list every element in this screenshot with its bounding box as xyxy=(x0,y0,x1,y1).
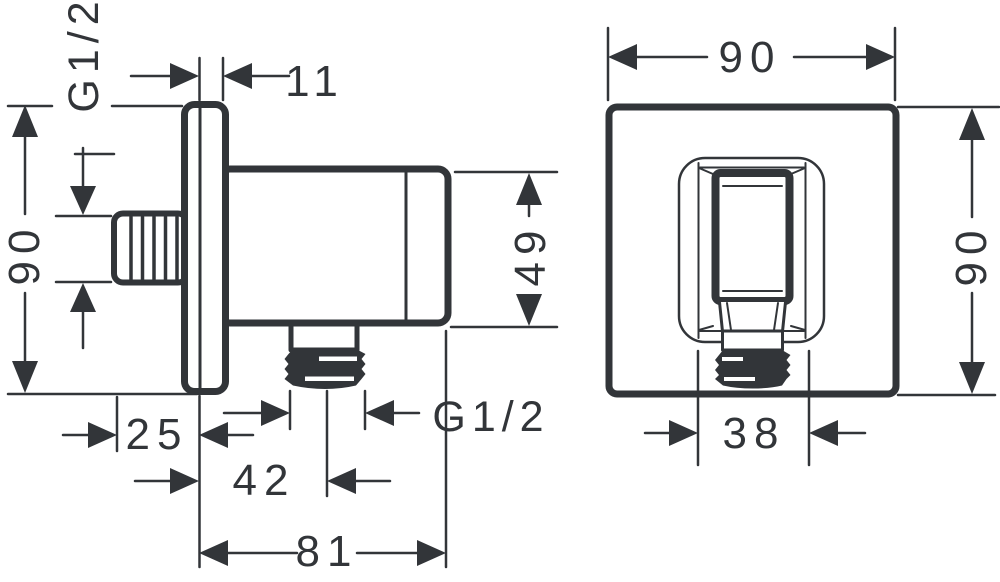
outlet-thread xyxy=(285,349,366,389)
dim-label-outlet-thread: G1/2 xyxy=(432,393,549,441)
thread-highlight xyxy=(305,377,354,382)
arrowhead xyxy=(959,108,985,140)
arrowhead xyxy=(809,420,838,446)
arrowhead xyxy=(70,186,96,215)
arrowhead xyxy=(170,468,199,494)
side-view: 11 G1/2 90 xyxy=(0,0,557,576)
thread-highlight xyxy=(722,357,743,361)
arrowhead xyxy=(12,361,38,393)
dim-label-inlet-thread: G1/2 xyxy=(60,0,108,113)
front-view-object xyxy=(609,107,896,394)
arrowhead xyxy=(88,422,117,448)
arrowhead xyxy=(223,63,252,89)
dim-outlet-thread: G1/2 xyxy=(224,391,550,441)
dim-label-outlet-width: 38 xyxy=(723,409,786,458)
thread-highlight xyxy=(724,377,755,381)
dim-label-front-overall-height: 90 xyxy=(947,224,996,287)
arrowhead xyxy=(365,400,394,426)
arrowhead xyxy=(417,540,446,566)
dim-overall-width: 90 xyxy=(608,28,895,100)
dim-label-overall-width: 90 xyxy=(719,33,782,82)
outlet-neck-front xyxy=(723,331,783,350)
dim-label-holder-height: 49 xyxy=(506,224,555,287)
thread-highlight xyxy=(319,357,357,362)
arrowhead xyxy=(199,540,228,566)
dim-plate-offset: 11 xyxy=(131,57,345,106)
front-view: 90 90 38 xyxy=(608,28,999,465)
technical-drawing: 11 G1/2 90 xyxy=(0,0,1000,582)
arrowhead xyxy=(170,63,199,89)
arrowhead xyxy=(608,44,637,70)
body xyxy=(220,169,448,323)
wall-plate xyxy=(185,105,226,392)
side-view-object xyxy=(114,105,448,392)
dim-holder-height: 49 xyxy=(451,172,557,327)
dim-label-inlet-depth: 25 xyxy=(126,410,189,459)
outlet-thread-front xyxy=(715,350,791,389)
arrowhead xyxy=(669,420,698,446)
arrowhead xyxy=(516,173,542,205)
arrowhead xyxy=(70,283,96,312)
arrowhead xyxy=(12,105,38,137)
arrowhead xyxy=(516,294,542,326)
arrowhead xyxy=(959,362,985,394)
arrowhead xyxy=(261,400,290,426)
dim-label-overall-depth: 81 xyxy=(296,527,359,576)
dim-inlet-thread: G1/2 xyxy=(56,0,114,348)
arrowhead xyxy=(199,422,228,448)
drawing-canvas: 11 G1/2 90 xyxy=(0,0,1000,582)
arrowhead xyxy=(327,468,356,494)
dim-inlet-depth: 25 xyxy=(63,397,253,459)
dim-label-overall-height: 90 xyxy=(0,223,49,286)
dim-label-outlet-axis-depth: 42 xyxy=(233,456,296,505)
dim-front-overall-height: 90 xyxy=(898,107,999,395)
holder-clamp xyxy=(716,173,790,301)
dim-label-plate-offset: 11 xyxy=(285,57,345,106)
arrowhead xyxy=(866,44,895,70)
